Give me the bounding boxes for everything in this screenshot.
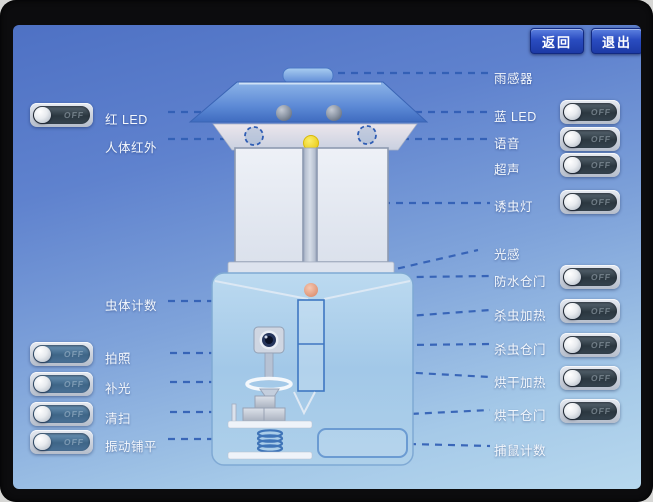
label-vibrate-flatten: 振动铺平 xyxy=(105,436,157,455)
toggle-clean[interactable]: OFF xyxy=(30,402,93,426)
camera-lens-highlight xyxy=(265,336,268,339)
toggle-state: OFF xyxy=(590,373,611,383)
toggle-knob xyxy=(564,303,581,320)
toggle-track: OFF xyxy=(563,193,617,211)
roof xyxy=(190,82,427,122)
blue-led-sphere xyxy=(326,105,342,121)
toggle-state: OFF xyxy=(63,110,84,120)
control-screen: 返回 退出 OFF 红 LED 人体红外 虫体计数 OFF 拍照 OFF 补光 … xyxy=(13,25,641,489)
label-blue-led: 蓝 LED xyxy=(494,106,537,125)
toggle-photo[interactable]: OFF xyxy=(30,342,93,366)
toggle-knob xyxy=(34,376,51,393)
label-voice: 语音 xyxy=(494,133,520,152)
toggle-kill-door[interactable]: OFF xyxy=(560,333,620,357)
toggle-track: OFF xyxy=(563,130,617,148)
toggle-state: OFF xyxy=(590,272,611,282)
label-kill-heat: 杀虫加热 xyxy=(494,305,546,324)
toggle-state: OFF xyxy=(590,406,611,416)
toggle-state: OFF xyxy=(63,349,84,359)
toggle-knob xyxy=(564,403,581,420)
voice-sensor-circle xyxy=(358,126,376,144)
toggle-track: OFF xyxy=(563,336,617,354)
tray-platform-upper xyxy=(228,421,312,428)
label-pir: 人体红外 xyxy=(105,137,157,156)
camera-stand xyxy=(265,353,273,380)
label-kill-door: 杀虫仓门 xyxy=(494,339,546,358)
toggle-track: OFF xyxy=(563,103,617,121)
toggle-voice[interactable]: OFF xyxy=(560,127,620,151)
toggle-knob xyxy=(34,406,51,423)
toggle-state: OFF xyxy=(63,379,84,389)
label-red-led: 红 LED xyxy=(105,109,148,128)
toggle-track: OFF xyxy=(563,402,617,420)
toggle-track: OFF xyxy=(33,375,90,393)
toggle-track: OFF xyxy=(33,433,90,451)
return-button[interactable]: 返回 xyxy=(530,28,584,54)
toggle-dry-door[interactable]: OFF xyxy=(560,399,620,423)
toggle-state: OFF xyxy=(590,340,611,350)
label-mouse-count: 捕鼠计数 xyxy=(494,440,546,459)
insect-counter-ball xyxy=(304,283,318,297)
toggle-track: OFF xyxy=(563,369,617,387)
exit-button[interactable]: 退出 xyxy=(591,28,641,54)
label-light-sensor: 光感 xyxy=(494,244,520,263)
toggle-lure-lamp[interactable]: OFF xyxy=(560,190,620,214)
toggle-track: OFF xyxy=(33,405,90,423)
label-ultrasonic: 超声 xyxy=(494,159,520,178)
toggle-state: OFF xyxy=(590,107,611,117)
label-waterproof-door: 防水仓门 xyxy=(494,271,546,290)
toggle-track: OFF xyxy=(33,106,90,124)
toggle-state: OFF xyxy=(590,134,611,144)
toggle-track: OFF xyxy=(563,156,617,174)
cleaning-stick xyxy=(232,404,236,422)
toggle-state: OFF xyxy=(590,160,611,170)
label-fill-light: 补光 xyxy=(105,378,131,397)
toggle-knob xyxy=(564,370,581,387)
label-photo: 拍照 xyxy=(105,348,131,367)
tray-platform-lower xyxy=(228,452,312,459)
label-lure-lamp: 诱虫灯 xyxy=(494,196,533,215)
toggle-fill-light[interactable]: OFF xyxy=(30,372,93,396)
toggle-state: OFF xyxy=(63,409,84,419)
monitor-bezel: 返回 退出 OFF 红 LED 人体红外 虫体计数 OFF 拍照 OFF 补光 … xyxy=(0,0,653,502)
label-clean: 清扫 xyxy=(105,408,131,427)
label-insect-count: 虫体计数 xyxy=(105,295,157,314)
brush-block-right xyxy=(264,408,285,421)
pir-sensor-circle xyxy=(245,127,263,145)
label-dry-heat: 烘干加热 xyxy=(494,372,546,391)
lamp-tube xyxy=(304,148,316,262)
toggle-state: OFF xyxy=(590,306,611,316)
toggle-dry-heat[interactable]: OFF xyxy=(560,366,620,390)
brush-block-left xyxy=(243,408,264,421)
toggle-ultrasonic[interactable]: OFF xyxy=(560,153,620,177)
toggle-track: OFF xyxy=(563,302,617,320)
toggle-track: OFF xyxy=(563,268,617,286)
toggle-knob xyxy=(564,104,581,121)
toggle-knob xyxy=(564,131,581,148)
right-glass-panel xyxy=(317,148,388,262)
toggle-vibrate-flatten[interactable]: OFF xyxy=(30,430,93,454)
rain-sensor-cap xyxy=(283,68,333,83)
toggle-knob xyxy=(564,269,581,286)
toggle-state: OFF xyxy=(590,197,611,207)
line-mouse-count xyxy=(409,444,490,446)
mouse-drawer xyxy=(318,429,407,457)
toggle-knob xyxy=(34,434,51,451)
toggle-track: OFF xyxy=(33,345,90,363)
toggle-kill-heat[interactable]: OFF xyxy=(560,299,620,323)
red-led-sphere xyxy=(276,105,292,121)
brush-block-top xyxy=(255,396,275,408)
toggle-waterproof-door[interactable]: OFF xyxy=(560,265,620,289)
toggle-red-led[interactable]: OFF xyxy=(30,103,93,127)
toggle-knob xyxy=(564,194,581,211)
left-glass-panel xyxy=(235,148,303,262)
toggle-knob xyxy=(34,346,51,363)
kill-dry-compartment xyxy=(298,300,324,391)
label-rain-sensor: 雨感器 xyxy=(494,68,533,87)
toggle-knob xyxy=(564,157,581,174)
toggle-knob xyxy=(564,337,581,354)
toggle-state: OFF xyxy=(63,437,84,447)
label-dry-door: 烘干仓门 xyxy=(494,405,546,424)
toggle-knob xyxy=(34,107,51,124)
toggle-blue-led[interactable]: OFF xyxy=(560,100,620,124)
